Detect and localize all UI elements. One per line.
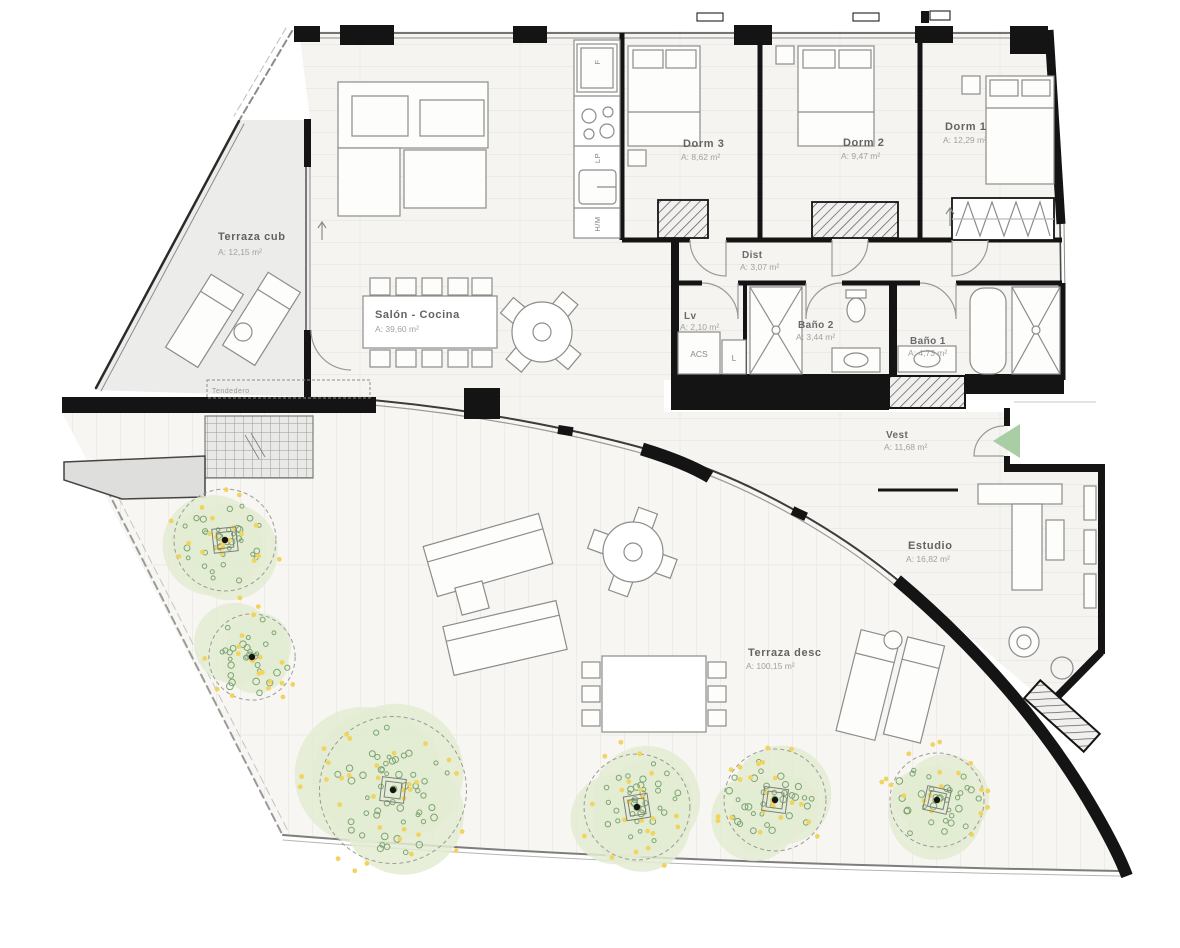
dining-table — [363, 296, 497, 348]
svg-text:A: 39,60 m²: A: 39,60 m² — [375, 324, 419, 334]
label-dishwasher: LP — [593, 153, 602, 163]
svg-text:A: 3,44 m²: A: 3,44 m² — [796, 332, 835, 342]
label-salon: Salón - Cocina — [375, 309, 460, 321]
label-dorm1: Dorm 1 — [945, 121, 987, 133]
label-vest: Vest — [886, 430, 908, 441]
label-fridge: F — [593, 59, 602, 64]
floor-plan-page: Tendedero — [0, 0, 1180, 948]
label-estudio: Estudio — [908, 540, 953, 552]
label-laundry: L — [732, 353, 737, 363]
svg-text:A: 12,29 m²: A: 12,29 m² — [943, 135, 987, 145]
svg-text:A: 9,47 m²: A: 9,47 m² — [841, 151, 880, 161]
bathtub-bano1 — [970, 288, 1006, 374]
floor-plan-svg: Tendedero — [0, 0, 1180, 948]
label-bano1: Baño 1 — [910, 336, 946, 347]
outdoor-dining — [582, 656, 726, 732]
wardrobe-dorm1 — [952, 198, 1054, 240]
label-acs: ACS — [690, 349, 708, 359]
svg-text:A: 3,07 m²: A: 3,07 m² — [740, 262, 779, 272]
svg-text:A: 11,68 m²: A: 11,68 m² — [884, 442, 927, 452]
shower-bano1 — [1012, 287, 1060, 374]
tendedero-label: Tendedero — [212, 388, 250, 395]
desk-return — [1012, 504, 1042, 590]
label-lv: Lv — [684, 311, 697, 322]
facade-pier — [464, 388, 500, 419]
tree — [295, 704, 467, 875]
svg-text:A: 100,15 m²: A: 100,15 m² — [746, 661, 795, 671]
label-terraza-desc: Terraza desc — [748, 647, 822, 659]
svg-text:A: 16,82 m²: A: 16,82 m² — [906, 554, 950, 564]
shower-bano2 — [750, 287, 802, 374]
svg-text:A: 8,62 m²: A: 8,62 m² — [681, 152, 720, 162]
desk — [978, 484, 1062, 504]
wardrobe-dorm2 — [812, 202, 898, 238]
toilet-bano2 — [846, 290, 866, 322]
desk-chair — [1009, 627, 1039, 657]
fridge — [577, 44, 617, 92]
vent-marks — [697, 11, 950, 23]
planter-bench — [64, 456, 205, 499]
svg-text:A: 12,15 m²: A: 12,15 m² — [218, 247, 262, 257]
label-oven-micro: H/M — [593, 216, 602, 231]
svg-text:A: 2,10 m²: A: 2,10 m² — [680, 322, 719, 332]
kitchen — [574, 40, 620, 238]
label-terraza-cub: Terraza cub — [218, 231, 286, 243]
vest-wardrobe — [889, 376, 965, 408]
sink-bano2 — [832, 348, 880, 372]
label-dist: Dist — [742, 250, 763, 261]
label-bano2: Baño 2 — [798, 320, 834, 331]
svg-text:A: 4,73 m²: A: 4,73 m² — [908, 348, 947, 358]
label-dorm3: Dorm 3 — [683, 138, 725, 150]
wardrobe-dorm3 — [658, 200, 708, 238]
label-dorm2: Dorm 2 — [843, 137, 885, 149]
